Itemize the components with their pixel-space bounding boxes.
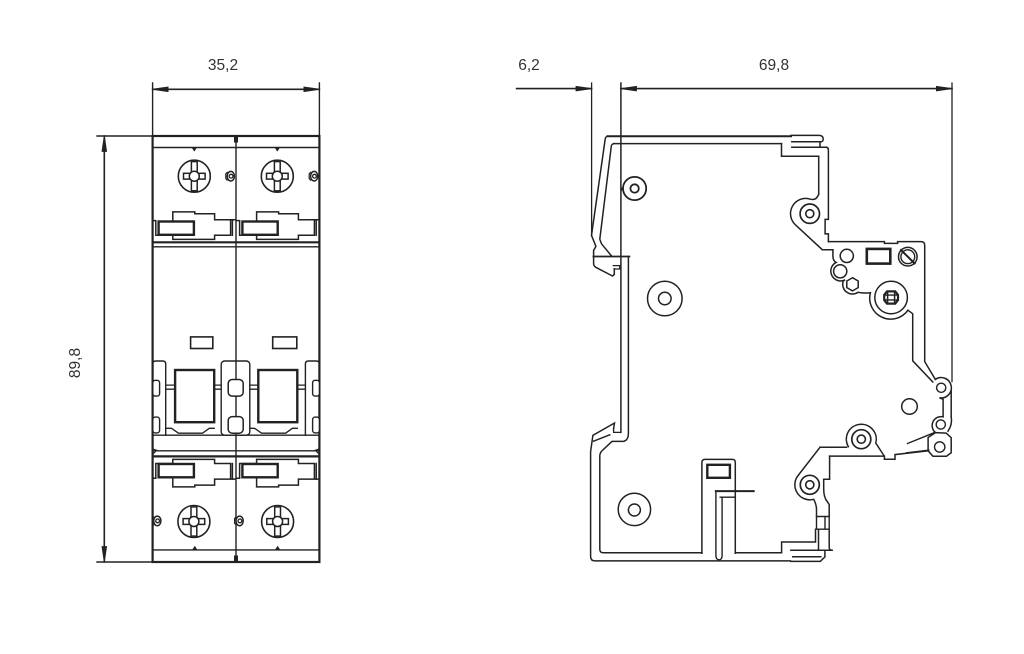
svg-text:89,8: 89,8 — [67, 348, 84, 378]
svg-text:6,2: 6,2 — [518, 57, 540, 74]
svg-text:35,2: 35,2 — [208, 57, 238, 74]
svg-text:69,8: 69,8 — [759, 57, 789, 74]
